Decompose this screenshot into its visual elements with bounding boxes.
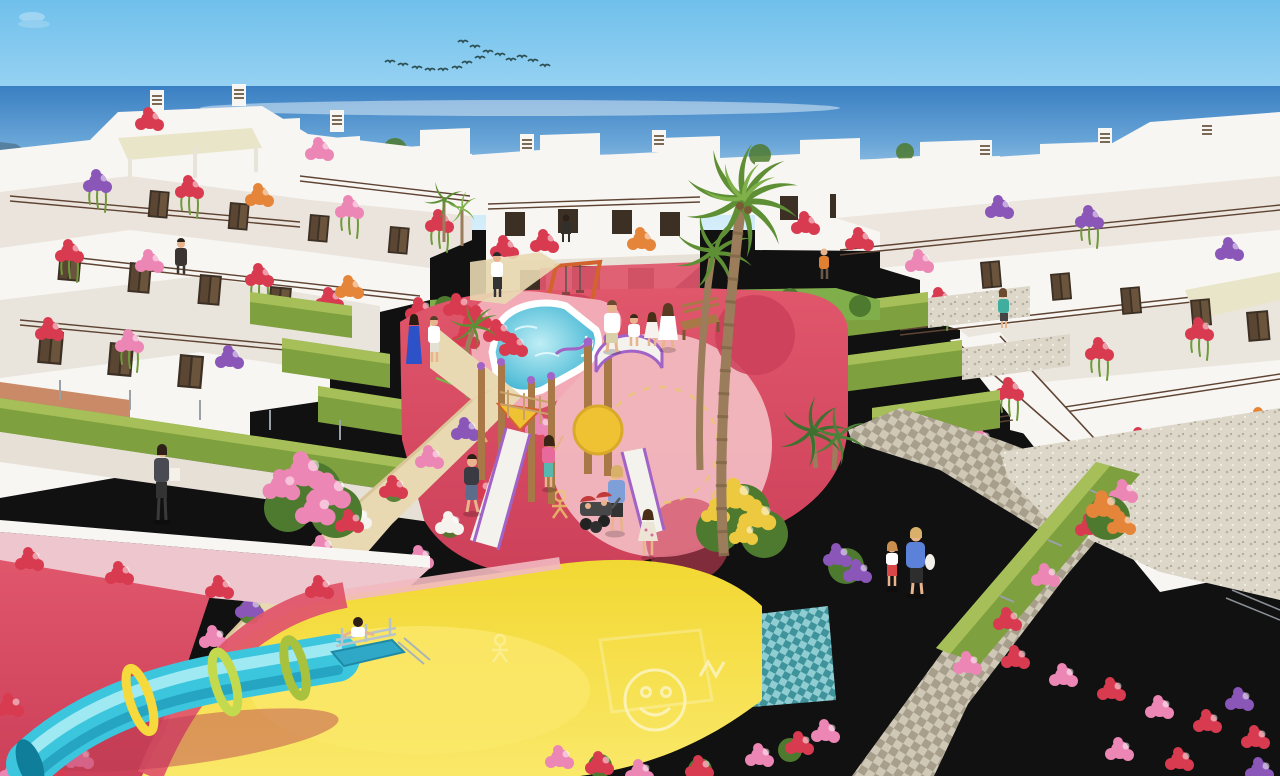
- purple-bush: [823, 543, 872, 584]
- architectural-render: [0, 0, 1280, 776]
- sea-shimmer: [200, 100, 840, 116]
- girl-red-pants: [885, 541, 899, 593]
- render-scene: [0, 0, 1280, 776]
- person-orange-far: [819, 249, 829, 280]
- woman-blue-right-path: [906, 527, 935, 600]
